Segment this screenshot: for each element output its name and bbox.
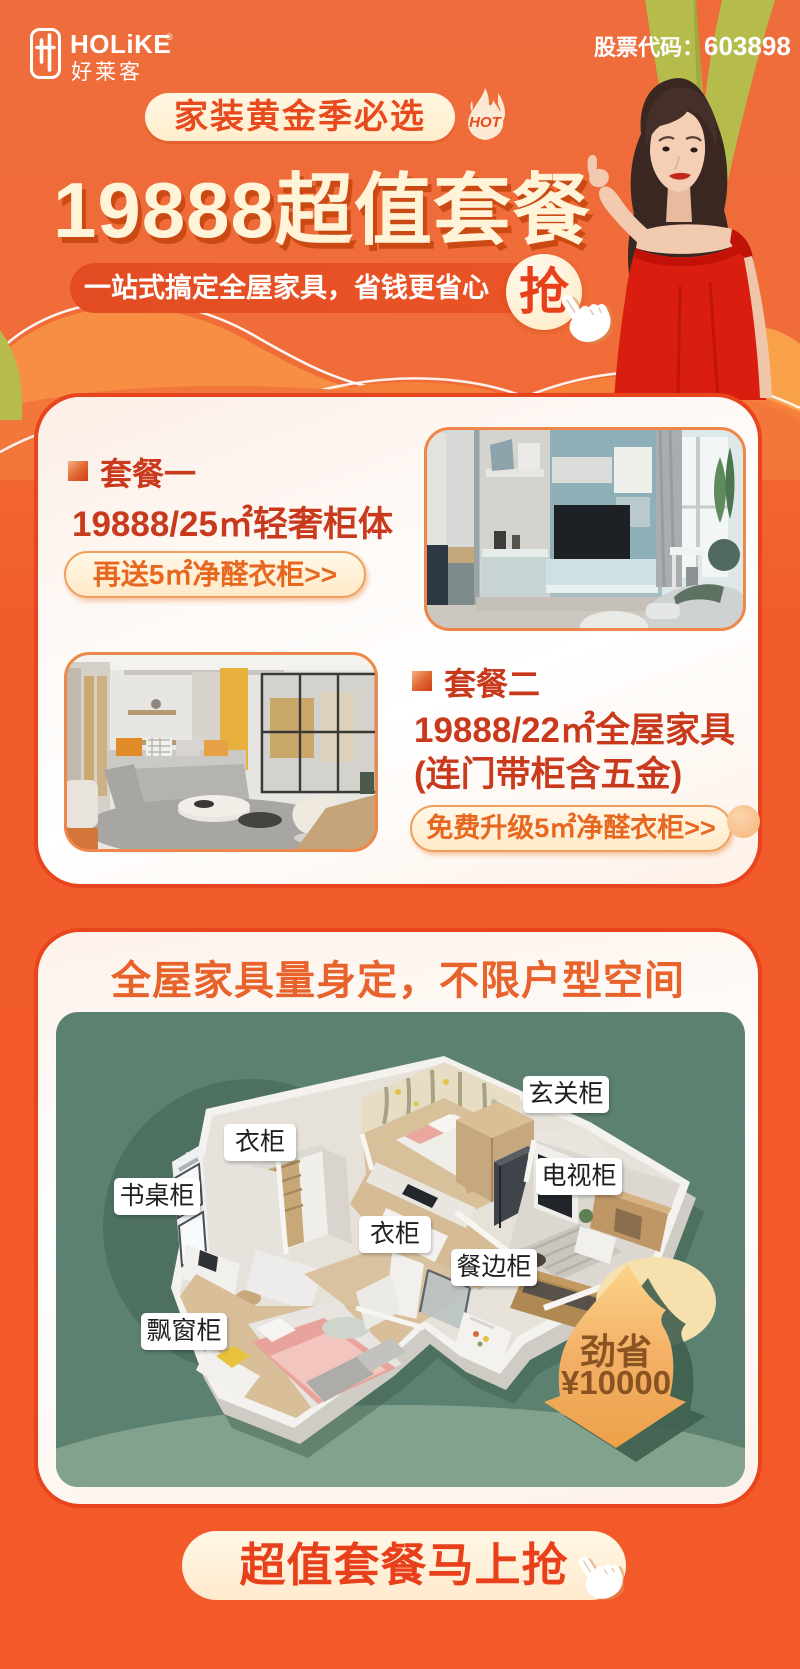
svg-text:HOT: HOT	[469, 114, 503, 131]
svg-text:好莱客: 好莱客	[71, 61, 143, 84]
svg-text:¥10000: ¥10000	[561, 1364, 671, 1401]
svg-text:HOLiKE: HOLiKE	[70, 29, 171, 59]
svg-text:®: ®	[166, 32, 173, 42]
